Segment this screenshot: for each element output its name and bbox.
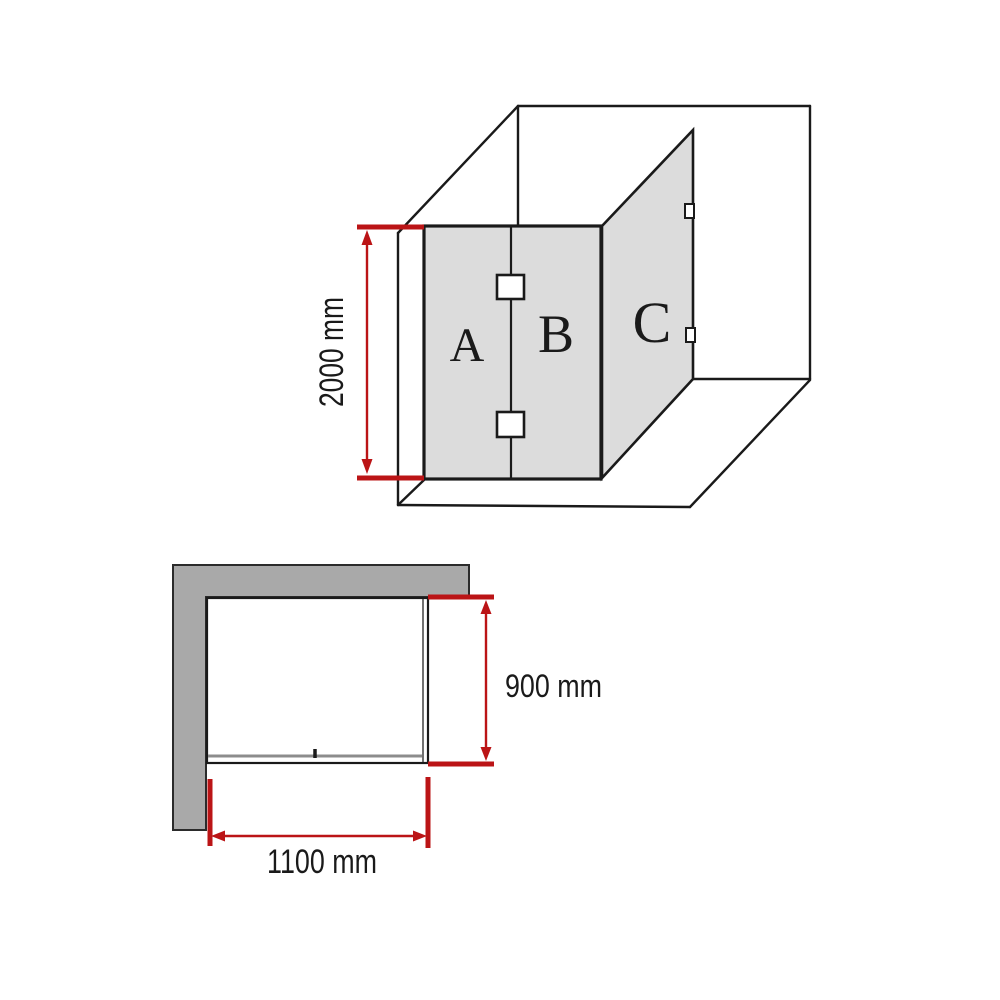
width-dim-label: 1100 mm	[267, 843, 377, 881]
wall-bracket-bottom	[686, 328, 695, 342]
panel-a-label: A	[450, 319, 485, 372]
height-dim-label: 2000 mm	[313, 297, 351, 407]
shower-tray	[207, 598, 428, 763]
panel-c-label: C	[633, 290, 672, 355]
width-dimension: 1100 mm	[210, 777, 428, 881]
room-edge-floor-front	[398, 505, 690, 507]
depth-dim-arrow-down	[481, 747, 492, 761]
hinge-bottom	[497, 412, 524, 437]
perspective-view: 2000 mm A B C	[313, 106, 810, 507]
height-dim-arrow-down	[362, 459, 373, 474]
height-dimension: 2000 mm	[313, 227, 424, 478]
diagram-canvas: 2000 mm A B C 900 mm	[0, 0, 1000, 1000]
room-edge-left-wall-bottom	[398, 480, 424, 505]
hinge-top	[497, 275, 524, 299]
panel-b-label: B	[538, 304, 574, 364]
shower-screen-diagram: 2000 mm A B C 900 mm	[0, 0, 1000, 1000]
height-dim-arrow-up	[362, 230, 373, 245]
depth-dim-label: 900 mm	[505, 668, 602, 704]
width-dim-arrow-left	[211, 831, 225, 842]
depth-dim-arrow-up	[481, 600, 492, 614]
room-edge-left-wall-top	[398, 106, 518, 233]
room-edge-floor-right	[690, 380, 810, 507]
wall-bracket-top	[685, 204, 694, 218]
depth-dimension: 900 mm	[428, 597, 602, 764]
plan-view: 900 mm 1100 mm	[173, 565, 602, 881]
width-dim-arrow-right	[413, 831, 427, 842]
